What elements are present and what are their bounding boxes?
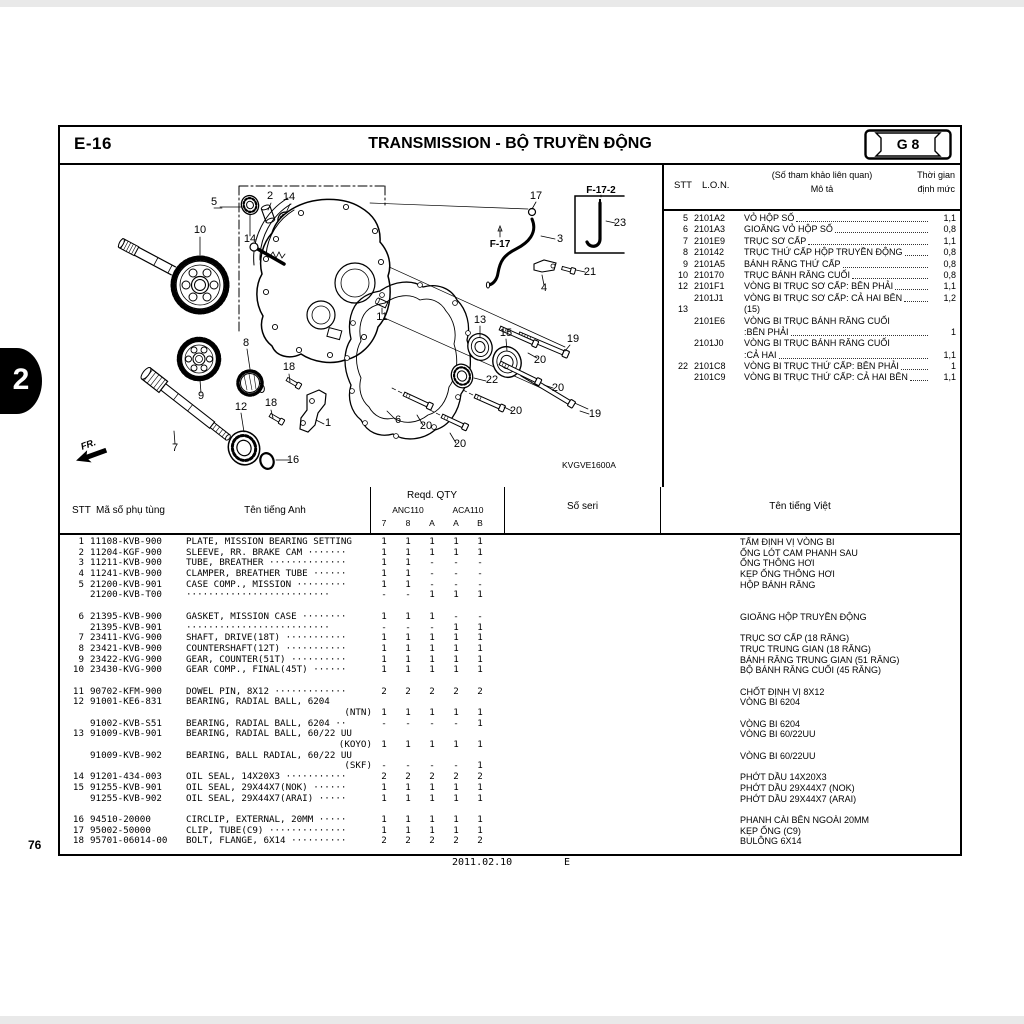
joint-tube-23 [587,203,600,246]
ref-row: 92101A5BÁNH RĂNG THỨ CẤP0,8 [664,259,960,270]
ref-row: 122101F1VÒNG BI TRỤC SƠ CẤP: BÊN PHẢI1,1 [664,281,960,292]
bolt-20c [403,391,434,410]
table-row: 1591255-KVB-901OIL SEAL, 29X44X7(NOK) ··… [60,783,960,794]
callout-20: 20 [420,420,432,432]
table-row: 1895701-06014-00BOLT, FLANGE, 6X14 ·····… [60,836,960,847]
reference-table-header: STT L.O.N. (Số tham khảo liên quan) Mô t… [664,163,960,211]
diagram-and-ref-area: FR. KVGVE1600A 5214141017233214111315192… [60,163,960,487]
ref-row: 2101J0VÒNG BI TRỤC BÁNH RĂNG CUỐI [664,338,960,349]
bolt-20e [474,393,506,412]
callout-20: 20 [552,382,564,394]
col-part-number: Mã số phụ tùng [96,505,165,516]
header-divider [370,487,371,533]
table-row: 621395-KVB-900GASKET, MISSION CASE ·····… [60,612,960,623]
ref-col-time-1: Thời gian [917,170,955,180]
callout-3: 3 [557,233,563,245]
callout-6: 6 [395,414,401,426]
fr-label: FR. [79,437,97,453]
callout-14: 14 [283,191,295,203]
callout-10: 10 [194,224,206,236]
ref-col-stt: STT [674,180,692,191]
callout-9: 9 [198,390,204,402]
table-row: 91009-KVB-902BEARING, BALL RADIAL, 60/22… [60,751,960,762]
callout-20: 20 [534,354,546,366]
col-anc110: ANC110 [372,505,444,515]
callout-21: 21 [584,266,596,278]
scan-edge-bottom [0,1016,1024,1024]
ref-row: 2101J1VÒNG BI TRỤC SƠ CẤP: CẢ HAI BÊN1,2 [664,293,960,304]
ball-bearing-12 [224,427,265,470]
col-sub-a2: A [444,518,468,528]
callout-19: 19 [567,333,579,345]
table-row: 1023430-KVG-900GEAR COMP., FINAL(45T) ··… [60,665,960,676]
pinion-gear [238,371,266,395]
page-title: TRANSMISSION - BỘ TRUYỀN ĐỘNG [60,135,960,153]
callout-20: 20 [510,405,522,417]
counter-gear [176,336,222,382]
sleeve-2 [261,204,276,224]
flange-bolt-18b [269,412,285,425]
callout-4: 4 [541,282,547,294]
table-row: 1291001-KE6-831BEARING, RADIAL BALL, 620… [60,697,960,708]
page-number: 76 [28,838,41,852]
callout-17: 17 [530,190,542,202]
ref-col-lon: L.O.N. [702,180,729,191]
diagram-code: KVGVE1600A [562,460,616,470]
setting-plate [300,390,326,432]
callout-16: 16 [287,454,299,466]
table-row: 823421-KVB-900COUNTERSHAFT(12T) ········… [60,644,960,655]
col-serial: Số seri [505,501,660,512]
table-row: 21200-KVB-T00··························-… [60,590,960,601]
ref-row: 2101C9VÒNG BI TRỤC THỨ CẤP: CẢ HAI BÊN1,… [664,372,960,383]
callout-5: 5 [211,196,217,208]
col-sub-8: 8 [396,518,420,528]
final-gear [170,255,230,315]
callout-18: 18 [265,397,277,409]
table-row: 1694510-20000CIRCLIP, EXTERNAL, 20MM ···… [60,815,960,826]
col-english-name: Tên tiếng Anh [210,505,340,516]
scan-edge-top [0,0,1024,7]
ball-bearing-22 [448,361,476,391]
header-divider [504,487,505,533]
col-reqd-qty: Reqd. QTY [372,490,492,501]
parts-table: STT Mã số phụ tùng Tên tiếng Anh Reqd. Q… [60,487,960,854]
callout-8: 8 [243,337,249,349]
parts-table-header: STT Mã số phụ tùng Tên tiếng Anh Reqd. Q… [60,487,960,535]
callout-7: 7 [172,442,178,454]
catalog-page: E-16 TRANSMISSION - BỘ TRUYỀN ĐỘNG G 8 [0,0,1024,1024]
ref-row: 222101C8VÒNG BI TRỤC THỨ CẤP: BÊN PHẢI1 [664,361,960,372]
ref-row: 13(15) [664,304,960,315]
ref-row: 52101A2VỎ HỘP SỐ1,1 [664,213,960,224]
callout-13: 13 [474,314,486,326]
tube-clamp [534,260,556,272]
callout-18: 18 [283,361,295,373]
reference-table: STT L.O.N. (Số tham khảo liên quan) Mô t… [662,163,960,487]
parts-table-rows: 111108-KVB-900PLATE, MISSION BEARING SET… [60,537,960,847]
footer-date: 2011.02.10 [452,857,512,868]
callout-22: 22 [486,374,498,386]
col-stt: STT [72,505,91,516]
table-row: 1391009-KVB-901BEARING, RADIAL BALL, 60/… [60,729,960,740]
ref-row: 62101A3GIOĂNG VỎ HỘP SỐ0,8 [664,224,960,235]
header-divider [660,487,661,533]
callout-14: 14 [244,233,256,245]
mission-case-cover [250,198,390,362]
tube-clip [529,209,536,216]
ref-row: :BÊN PHẢI1 [664,327,960,338]
flange-bolt-18a [286,376,302,389]
bearing-5 [239,193,261,217]
page-header: E-16 TRANSMISSION - BỘ TRUYỀN ĐỘNG G 8 [60,127,960,165]
grid-reference: G 8 [864,136,952,152]
circlip [258,451,276,470]
bolt-20d [441,413,469,431]
front-direction-arrow: FR. [71,435,109,468]
section-tab: 2 [0,348,42,414]
footer-revision: E [564,857,570,868]
grid-reference-badge: G 8 [864,129,952,160]
ref-row: 72101E9TRỤC SƠ CẤP1,1 [664,236,960,247]
bolt-21 [561,265,576,274]
callout-20: 20 [454,438,466,450]
callout-F-17: F-17 [490,239,511,250]
ref-row: 2101E6VÒNG BI TRỤC BÁNH RĂNG CUỐI [664,316,960,327]
callout-F-17-2: F-17-2 [586,185,616,196]
col-sub-b: B [468,518,492,528]
callout-12: 12 [235,401,247,413]
ref-col-desc-1: (Số tham khảo liên quan) [742,170,902,180]
content-sheet: E-16 TRANSMISSION - BỘ TRUYỀN ĐỘNG G 8 [58,125,962,856]
callout-1: 1 [325,417,331,429]
col-aca110: ACA110 [444,505,492,515]
table-row: 91255-KVB-902OIL SEAL, 29X44X7(ARAI) ···… [60,794,960,805]
reference-table-rows: 52101A2VỎ HỘP SỐ1,162101A3GIOĂNG VỎ HỘP … [664,213,960,384]
diagram-callouts: 5214141017233214111315192022208181891216… [172,185,626,466]
ref-col-time-2: định mức [917,184,955,194]
col-sub-7: 7 [372,518,396,528]
callout-15: 15 [500,327,512,339]
callout-23: 23 [614,217,626,229]
callout-19: 19 [589,408,601,420]
ref-col-desc-2: Mô tả [742,184,902,194]
ref-row: 10210170TRỤC BÁNH RĂNG CUỐI0,8 [664,270,960,281]
col-vietnamese-name: Tên tiếng Việt [660,501,940,512]
exploded-parts-diagram: FR. KVGVE1600A 5214141017233214111315192… [60,163,662,487]
ref-row: :CẢ HAI1,1 [664,350,960,361]
callout-11: 11 [376,311,387,323]
callout-2: 2 [267,190,273,202]
ref-row: 8210142TRỤC THỨ CẤP HỘP TRUYỀN ĐỘNG0,8 [664,247,960,258]
col-sub-a1: A [420,518,444,528]
